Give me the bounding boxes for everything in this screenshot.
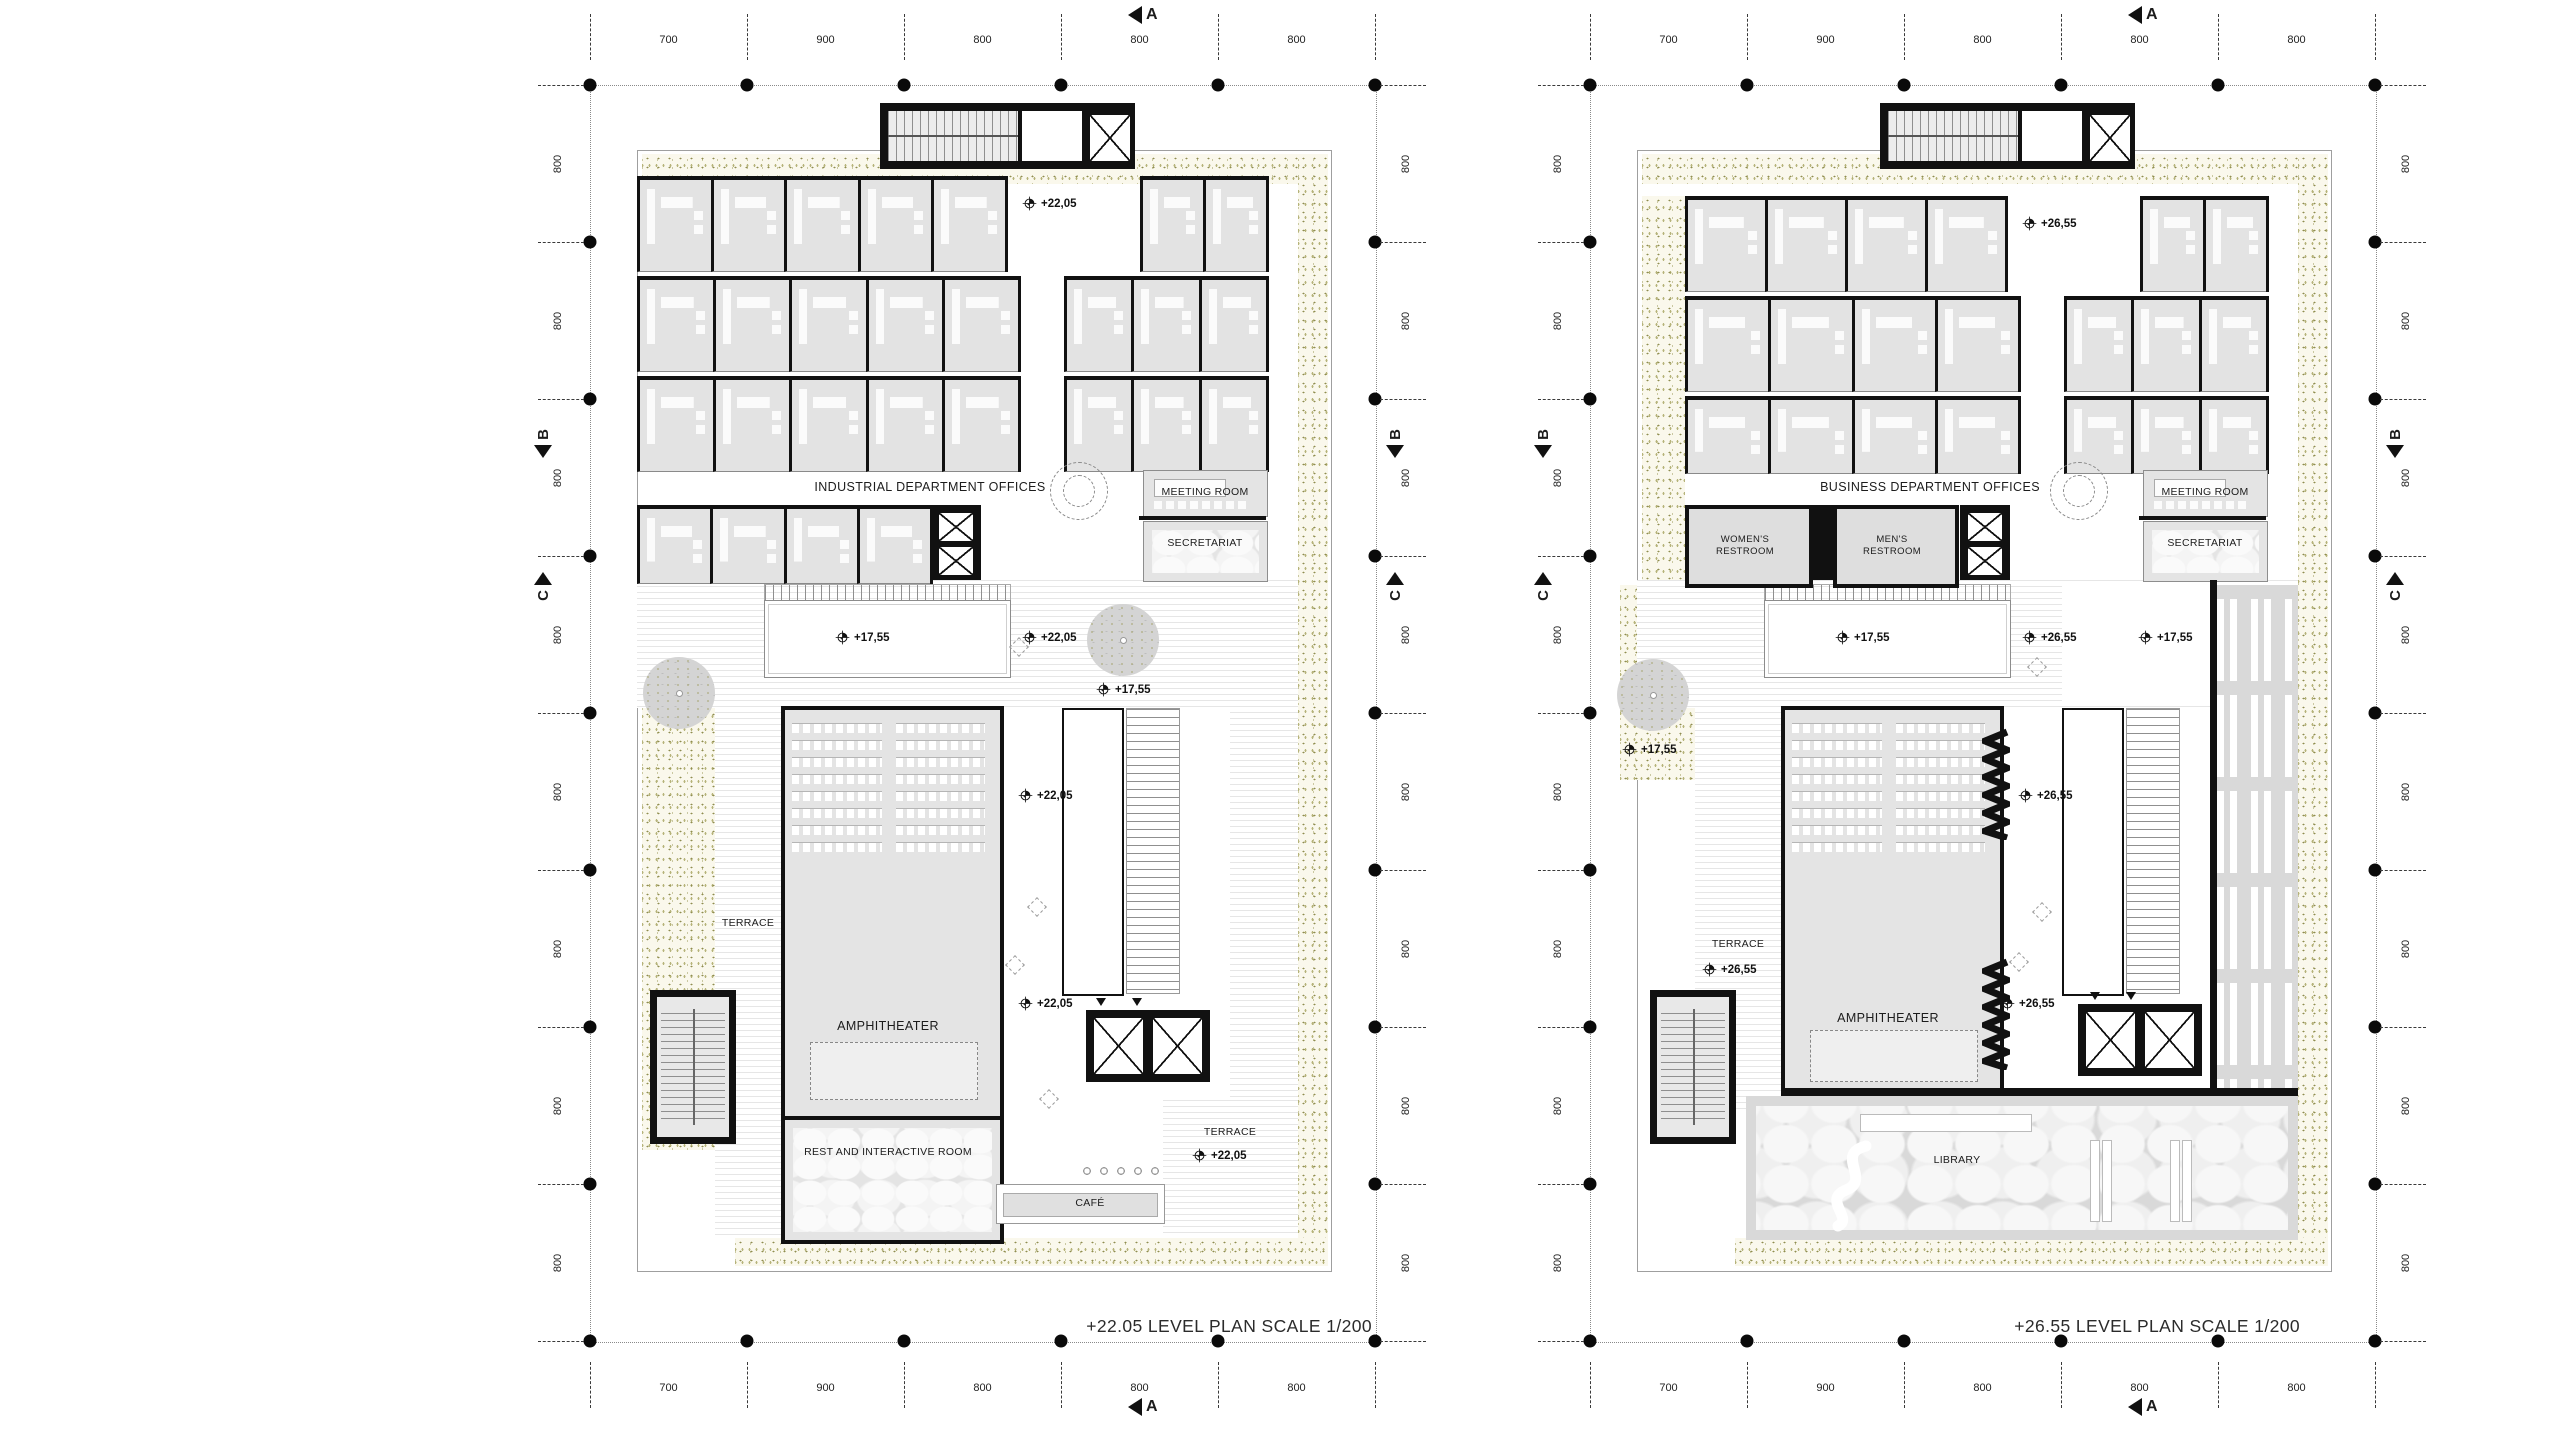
seat-row (792, 740, 882, 750)
seat-row (896, 740, 986, 750)
dimension-label: 800 (1400, 311, 1412, 329)
floor-plan-26-55: 7007009009008008008008008008008008008008… (1530, 0, 2430, 1440)
dimension-label: 800 (1400, 782, 1412, 800)
shaft (1809, 505, 1833, 580)
office-cell (710, 509, 783, 584)
exterior-stair-tower (1650, 990, 1736, 1144)
column-dot (898, 1335, 911, 1348)
elevator-arrow-icon (2126, 992, 2136, 1000)
dimension-label: 900 (1816, 1382, 1834, 1394)
level-marker: +26,55 (1702, 962, 1757, 977)
bookshelf-icon (2182, 1140, 2192, 1222)
meeting-room-label: MEETING ROOM (1161, 486, 1248, 498)
grid-tick (1590, 1362, 1591, 1408)
elevator-arrow-icon (1096, 998, 1106, 1006)
exterior-stair-tower (650, 990, 736, 1144)
seat-row (896, 723, 986, 733)
elevator-icon (1151, 1016, 1204, 1076)
grid-tick (1538, 85, 1584, 86)
column-dot (584, 550, 597, 563)
dimension-label: 900 (816, 34, 834, 46)
column-dot (584, 1021, 597, 1034)
grid-tick (2380, 556, 2426, 557)
bookshelf-icon (2170, 1140, 2180, 1222)
grid-tick (2380, 1341, 2426, 1342)
folding-partition-icon (1982, 728, 2010, 845)
wall (1139, 516, 1266, 520)
dimension-label: 800 (2400, 1253, 2412, 1271)
dimension-label: 900 (816, 1382, 834, 1394)
office-row (2064, 396, 2269, 474)
level-marker: +26,55 (2022, 216, 2077, 231)
level-marker-icon (2022, 216, 2037, 231)
terrace-left-label: TERRACE (722, 917, 774, 929)
section-arrow-icon (1128, 1398, 1142, 1416)
plan-caption: +26.55 LEVEL PLAN SCALE 1/200 (2014, 1316, 2300, 1337)
office-row (1064, 276, 1269, 372)
grid-tick (538, 1027, 584, 1028)
stair-elevator-core (1880, 103, 2135, 169)
seat-row (1896, 825, 1986, 835)
dimension-label: 700 (1659, 34, 1677, 46)
seat-row (792, 757, 882, 767)
column-dot (584, 393, 597, 406)
seat-row (1896, 791, 1986, 801)
office-cell (866, 380, 942, 472)
grid-tick (2380, 713, 2426, 714)
column-dot (1898, 79, 1911, 92)
mens-restroom-label: MEN'S RESTROOM (1848, 534, 1936, 558)
section-arrow-icon (534, 572, 552, 585)
office-cell (1768, 300, 1851, 392)
office-cell (858, 180, 932, 272)
seat-row (1896, 842, 1986, 852)
grid-tick (538, 556, 584, 557)
column-dot (1584, 236, 1597, 249)
grid-tick (904, 1362, 905, 1408)
rest-interactive-room (781, 1116, 1004, 1244)
seat-column (792, 716, 882, 988)
office-cell (866, 280, 942, 372)
level-marker: +22,05 (1018, 788, 1073, 803)
stage (810, 1042, 978, 1100)
dimension-label: 800 (1130, 1382, 1148, 1394)
dimension-label: 800 (1287, 34, 1305, 46)
elevator-icon (1966, 511, 2004, 543)
office-cell (1768, 400, 1851, 474)
dimension-label: 800 (1400, 154, 1412, 172)
seat-row (1792, 740, 1882, 750)
elevator-pair (2078, 1004, 2202, 1076)
grid-tick (1061, 1362, 1062, 1408)
office-cell (857, 509, 930, 584)
tree (643, 657, 715, 729)
level-marker-icon (1835, 630, 1850, 645)
grid-tick (538, 1341, 584, 1342)
dimension-label: 800 (2287, 1382, 2305, 1394)
level-marker: +26,55 (2000, 996, 2055, 1011)
terrace-deck-bottom-right (1163, 1100, 1298, 1238)
column-dot (1584, 707, 1597, 720)
seat-column (1792, 716, 1882, 974)
section-arrow-icon (2128, 6, 2142, 24)
office-cell (711, 180, 785, 272)
dimension-label: 800 (2400, 154, 2412, 172)
grid-tick (2380, 85, 2426, 86)
grid-tick (2380, 399, 2426, 400)
office-cell (2199, 300, 2266, 392)
dimension-label: 800 (2400, 782, 2412, 800)
section-marker-c: C (1534, 572, 1552, 604)
dimension-label: 800 (552, 311, 564, 329)
grid-tick (2380, 242, 2426, 243)
office-row (637, 276, 1021, 372)
seat-row (1896, 757, 1986, 767)
wall (1781, 1088, 2298, 1096)
office-cell (1935, 400, 2018, 474)
dimension-label: 800 (1552, 939, 1564, 957)
section-arrow-icon (534, 445, 552, 458)
column-dot (1055, 1335, 1068, 1348)
elevator-icon (937, 511, 975, 543)
office-row (637, 376, 1021, 472)
office-row (1685, 396, 2021, 474)
section-arrow-icon (2128, 1398, 2142, 1416)
level-marker-icon (1018, 788, 1033, 803)
grid-tick (1380, 1341, 1426, 1342)
dimension-label: 900 (1816, 34, 1834, 46)
secretariat-label: SECRETARIAT (1167, 537, 1242, 549)
offices-label: INDUSTRIAL DEPARTMENT OFFICES (814, 480, 1045, 494)
offices-label: BUSINESS DEPARTMENT OFFICES (1820, 480, 2040, 494)
column-dot (1584, 79, 1597, 92)
elevator-arrow-icon (2090, 992, 2100, 1000)
library-info-desk (1860, 1114, 2032, 1132)
grid-tick (1538, 556, 1584, 557)
grid-tick (1380, 870, 1426, 871)
office-cell (1064, 380, 1131, 472)
dimension-label: 800 (1400, 625, 1412, 643)
column-dot (1055, 79, 1068, 92)
office-cell (1064, 280, 1131, 372)
column-dot (2212, 79, 2225, 92)
amphitheater-seats (792, 716, 985, 988)
grid-tick (538, 1184, 584, 1185)
elevator-icon (2088, 113, 2132, 163)
section-marker-b: B (1534, 426, 1552, 458)
secretariat-label: SECRETARIAT (2167, 537, 2242, 549)
stair-void (2062, 708, 2124, 996)
dimension-label: 800 (1400, 1253, 1412, 1271)
seat-row (896, 825, 986, 835)
dimension-label: 800 (1400, 1096, 1412, 1114)
grid-tick (1375, 14, 1376, 60)
seat-row (1896, 723, 1986, 733)
column-dot (898, 79, 911, 92)
dimension-label: 700 (659, 1382, 677, 1394)
column-dot (1584, 1178, 1597, 1191)
level-marker-icon (2022, 630, 2037, 645)
seat-row (1896, 808, 1986, 818)
dimension-label: 800 (1973, 1382, 1991, 1394)
elevator-icon (937, 545, 975, 577)
dimension-label: 800 (1400, 939, 1412, 957)
grid-tick (1380, 242, 1426, 243)
office-cell (931, 180, 1005, 272)
dimension-label: 800 (552, 625, 564, 643)
zigzag-icon (1982, 958, 2010, 1070)
grid-tick (1538, 713, 1584, 714)
grid-tick (1538, 399, 1584, 400)
seat-row (1792, 791, 1882, 801)
grid-tick (538, 713, 584, 714)
bookshelf-icon (2090, 1140, 2100, 1222)
grid-tick (1590, 14, 1591, 60)
grid-tick (1218, 14, 1219, 60)
plan-caption: +22.05 LEVEL PLAN SCALE 1/200 (1086, 1316, 1372, 1337)
grid-tick (747, 1362, 748, 1408)
grid-tick (538, 85, 584, 86)
stair-landing (888, 135, 1018, 137)
seat-row (792, 774, 882, 784)
level-marker: +17,55 (1622, 742, 1677, 757)
dimension-label: 800 (1552, 311, 1564, 329)
seat-row (896, 842, 986, 852)
grid-tick (2380, 1184, 2426, 1185)
grid-tick (2218, 1362, 2219, 1408)
seat-column (896, 716, 986, 988)
stair-void (1062, 708, 1124, 996)
grid-tick (1380, 85, 1426, 86)
grid-tick (2380, 870, 2426, 871)
folding-partition-icon (1982, 958, 2010, 1075)
office-cell (1140, 180, 1203, 272)
level-marker: +22,05 (1018, 996, 1073, 1011)
elevator-icon (2143, 1010, 2196, 1070)
grid-tick (2218, 14, 2219, 60)
office-cell (1765, 200, 1845, 292)
dimension-label: 700 (1659, 1382, 1677, 1394)
section-arrow-icon (1534, 445, 1552, 458)
seat-row (792, 723, 882, 733)
grid-tick (1380, 556, 1426, 557)
column-dot (1584, 393, 1597, 406)
core-lobby (1022, 111, 1082, 161)
column-dot (1898, 1335, 1911, 1348)
column-dot (584, 79, 597, 92)
library-shelves (2217, 585, 2298, 1088)
dimension-label: 800 (1552, 1253, 1564, 1271)
wall (2210, 580, 2217, 1092)
planting-band-right (1298, 154, 1328, 1240)
level-marker: +17,55 (1835, 630, 1890, 645)
level-marker: +22,05 (1022, 630, 1077, 645)
office-row (2064, 296, 2269, 392)
column-dot (584, 1335, 597, 1348)
grid-tick (2380, 1027, 2426, 1028)
elevator-core (1960, 505, 2010, 580)
elevator-core (931, 505, 981, 580)
column-dot (1584, 864, 1597, 877)
level-marker: +22,05 (1192, 1148, 1247, 1163)
dimension-label: 800 (1400, 468, 1412, 486)
elevator-icon (1088, 113, 1132, 163)
spiral-stair-icon (1063, 475, 1095, 507)
level-marker-icon (1702, 962, 1717, 977)
office-cell (789, 380, 865, 472)
dimension-label: 800 (973, 34, 991, 46)
level-marker-icon (835, 630, 850, 645)
section-marker-c: C (2386, 572, 2404, 604)
office-cell (713, 280, 789, 372)
column-dot (584, 864, 597, 877)
office-cell (789, 280, 865, 372)
cafe-stools (1082, 1166, 1168, 1177)
office-row (637, 176, 1008, 272)
grid-tick (2375, 1362, 2376, 1408)
terrace-left-label: TERRACE (1712, 938, 1764, 950)
grid-tick (904, 14, 905, 60)
column-dot (1584, 550, 1597, 563)
elevator-icon (2084, 1010, 2137, 1070)
office-cell (1852, 300, 1935, 392)
column-dot (1212, 79, 1225, 92)
section-marker-c: C (1386, 572, 1404, 604)
seat-row (1896, 740, 1986, 750)
section-marker-a: A (1128, 6, 1158, 24)
office-cell (784, 509, 857, 584)
core-lobby (2022, 111, 2082, 161)
grid-tick (1061, 14, 1062, 60)
grid-tick (1380, 1027, 1426, 1028)
section-marker-b: B (534, 426, 552, 458)
seat-row (896, 791, 986, 801)
office-cell (1685, 300, 1768, 392)
office-cell (1199, 380, 1266, 472)
main-stair-icon (2126, 708, 2180, 994)
section-arrow-icon (1128, 6, 1142, 24)
grid-tick (538, 242, 584, 243)
seat-row (1792, 774, 1882, 784)
column-dot (584, 236, 597, 249)
wall (2139, 516, 2266, 520)
office-cell (637, 180, 711, 272)
grid-tick (1538, 1184, 1584, 1185)
office-cell (2131, 300, 2198, 392)
terrace-deck-right (1230, 580, 1298, 1100)
level-marker: +22,05 (1022, 196, 1077, 211)
stage (1810, 1030, 1978, 1082)
section-arrow-icon (1386, 445, 1404, 458)
level-marker-icon (2000, 996, 2015, 1011)
secretariat-room (2143, 521, 2268, 582)
spiral-stair-icon (2063, 475, 2095, 507)
grid-tick (590, 1362, 591, 1408)
seat-row (896, 757, 986, 767)
level-marker: +26,55 (2018, 788, 2073, 803)
office-cell (2199, 400, 2266, 474)
grid-tick (1538, 242, 1584, 243)
level-marker-icon (2018, 788, 2033, 803)
section-marker-a: A (2128, 1398, 2158, 1416)
dimension-label: 800 (1552, 1096, 1564, 1114)
grid-tick (1747, 14, 1748, 60)
dimension-label: 800 (1552, 625, 1564, 643)
dimension-label: 800 (1552, 782, 1564, 800)
grid-tick (1218, 1362, 1219, 1408)
grid-tick (747, 14, 748, 60)
stair-hatch (764, 584, 1011, 601)
section-arrow-icon (2386, 445, 2404, 458)
office-row (637, 505, 933, 584)
office-cell (637, 380, 713, 472)
office-cell (1685, 200, 1765, 292)
grid-tick (1747, 1362, 1748, 1408)
column-dot (1584, 1335, 1597, 1348)
grid-tick (538, 870, 584, 871)
grid-tick (1380, 1184, 1426, 1185)
dimension-label: 800 (1287, 1382, 1305, 1394)
office-row (1064, 376, 1269, 472)
level-marker-icon (1622, 742, 1637, 757)
dimension-label: 800 (1973, 34, 1991, 46)
dimension-label: 800 (1552, 468, 1564, 486)
meeting-room-label: MEETING ROOM (2161, 486, 2248, 498)
office-cell (637, 509, 710, 584)
grid-tick (1380, 399, 1426, 400)
dimension-label: 800 (973, 1382, 991, 1394)
elevator-arrow-icon (1132, 998, 1142, 1006)
planting-band-bottom (1735, 1238, 2328, 1266)
office-cell (637, 280, 713, 372)
seat-row (792, 842, 882, 852)
office-row (1685, 196, 2008, 292)
office-cell (1203, 180, 1266, 272)
level-marker-icon (1022, 630, 1037, 645)
office-cell (1131, 380, 1198, 472)
office-cell (1925, 200, 2005, 292)
level-marker-icon (1018, 996, 1033, 1011)
section-marker-b: B (2386, 426, 2404, 458)
seat-row (1792, 757, 1882, 767)
terrace-right-label: TERRACE (1204, 1126, 1256, 1138)
office-cell (1199, 280, 1266, 372)
dimension-label: 800 (1552, 154, 1564, 172)
roof-void (2062, 585, 2216, 705)
grid-tick (2061, 14, 2062, 60)
dimension-label: 800 (2400, 1096, 2412, 1114)
amphitheater-seats (1792, 716, 1985, 974)
dimension-label: 800 (552, 468, 564, 486)
main-stair-icon (1126, 708, 1180, 994)
floor-plan-22-05: 7007009009008008008008008008008008008008… (530, 0, 1430, 1440)
seat-column (1896, 716, 1986, 974)
dimension-label: 700 (659, 34, 677, 46)
grid-tick (1380, 713, 1426, 714)
column-dot (2055, 79, 2068, 92)
section-marker-b: B (1386, 426, 1404, 458)
section-marker-a: A (2128, 6, 2158, 24)
elevator-pair (1086, 1010, 1210, 1082)
office-cell (942, 380, 1018, 472)
stair-elevator-core (880, 103, 1135, 169)
office-row (2140, 196, 2269, 292)
womens-restroom-label: WOMEN'S RESTROOM (1701, 534, 1789, 558)
curved-shelf-icon (1820, 1140, 1880, 1232)
rest-room-label: REST AND INTERACTIVE ROOM (804, 1146, 972, 1158)
office-cell (784, 180, 858, 272)
column-dot (584, 1178, 597, 1191)
